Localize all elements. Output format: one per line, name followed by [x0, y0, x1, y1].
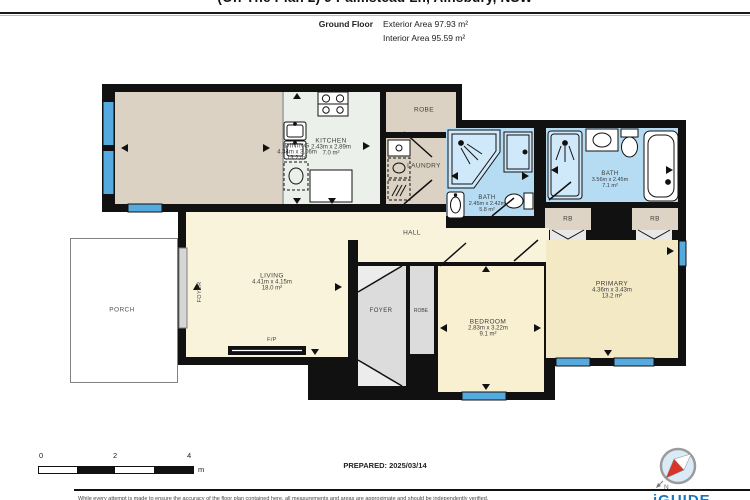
- front-door: [179, 248, 187, 328]
- shower-icon: [548, 131, 582, 199]
- room-label-hall: HALL: [403, 230, 421, 237]
- wall-nub: [348, 240, 358, 268]
- fridge-icon: [284, 162, 308, 190]
- room-label-fireplace: F/P: [267, 337, 277, 343]
- room-label-kitchen: KITCHEN 2.43m x 2.89m 7.0 m²: [311, 138, 351, 157]
- room-label-bedroom: BEDROOM 2.83m x 3.22m 9.1 m²: [468, 319, 508, 338]
- room-label-foyer-entry: FOYER: [197, 282, 203, 303]
- bathroom-sink-icon: [447, 192, 464, 218]
- bathroom-sink-icon: [586, 129, 618, 151]
- bathtub-icon: [644, 131, 678, 201]
- compass-icon: [656, 449, 695, 488]
- toilet-icon: [621, 129, 638, 157]
- room-label-rb-left: RB: [563, 216, 573, 223]
- room-label-bath-main: BATH 2.45m x 2.42m 5.8 m²: [469, 195, 505, 213]
- laundry-sink-icon: [388, 140, 410, 156]
- room-label-living: LIVING 4.41m x 4.15m 18.0 m²: [252, 273, 292, 292]
- kitchen-counter: [310, 170, 352, 202]
- compass-north-label: N: [664, 484, 669, 491]
- floorplan-details: N: [0, 0, 750, 500]
- room-label-porch: PORCH: [109, 307, 134, 314]
- room-label-primary: PRIMARY 4.36m x 3.43m 13.2 m²: [592, 281, 632, 300]
- room-label-foyer: FOYER: [370, 308, 393, 314]
- room-label-laundry: LAUNDRY: [407, 163, 441, 170]
- room-label-robe-top: ROBE: [414, 107, 434, 114]
- room-label-robe-bedroom: ROBE: [414, 308, 428, 314]
- floor-plan-page: (Off The Plan 2) 9 Palmstead Ln, Ainsbur…: [0, 0, 750, 500]
- stove-icon: [318, 92, 348, 116]
- shower-icon: [504, 132, 532, 172]
- room-label-rb-right: RB: [650, 216, 660, 223]
- shower-icon: [448, 130, 500, 188]
- room-label-bath-ensuite: BATH 3.56m x 2.45m 7.1 m²: [592, 171, 628, 189]
- fireplace-icon: [228, 346, 306, 355]
- dryer-icon: [388, 180, 410, 200]
